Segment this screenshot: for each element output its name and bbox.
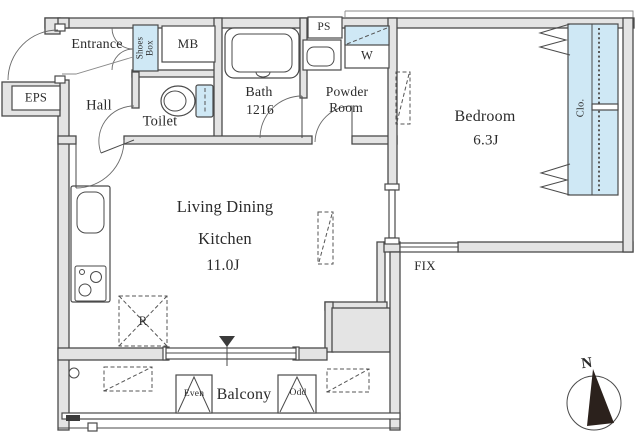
- label-fix-window: FIX: [414, 258, 436, 274]
- label-ldk-size: 11.0J: [206, 257, 240, 275]
- label-closet: Clo.: [576, 99, 587, 118]
- label-washer: W: [361, 49, 373, 64]
- label-compass-north: N: [580, 355, 593, 373]
- entry-direction-marker: [219, 336, 235, 347]
- label-hatch-even: Even: [184, 389, 204, 399]
- compass: [567, 369, 621, 430]
- bathtub: [225, 28, 299, 78]
- label-bath: Bath: [245, 85, 272, 101]
- label-bedroom: Bedroom: [455, 108, 516, 126]
- label-shoes-box: Shoes Box: [135, 31, 156, 65]
- kitchen-counter: [71, 186, 110, 302]
- toilet-fixture: [161, 85, 213, 117]
- label-hall: Hall: [86, 98, 112, 115]
- label-hatch-odd: Odd: [290, 388, 307, 398]
- label-powder-room-1: Powder: [326, 84, 368, 100]
- label-bath-size: 1216: [246, 102, 274, 118]
- label-entrance: Entrance: [71, 37, 122, 53]
- label-refrigerator: R: [139, 313, 148, 329]
- bedroom-sliding-door: [389, 190, 395, 238]
- label-bedroom-size: 6.3J: [473, 133, 498, 150]
- label-ldk-1: Living Dining: [177, 197, 274, 217]
- label-eps: EPS: [25, 91, 47, 106]
- folding-door-mark-bottom: [541, 164, 570, 195]
- compass-needle: [587, 369, 614, 426]
- label-toilet: Toilet: [143, 114, 178, 131]
- genkan-step-line: [62, 57, 133, 74]
- label-meter-box: MB: [178, 36, 199, 52]
- label-pipe-space: PS: [317, 21, 330, 33]
- label-balcony: Balcony: [217, 386, 272, 404]
- label-ldk-2: Kitchen: [198, 229, 252, 249]
- powder-sink: [303, 40, 341, 70]
- floorplan: Entrance Shoes Box MB EPS Hall Toilet Ba…: [0, 0, 640, 442]
- drain-cover: [66, 415, 80, 421]
- balcony-drain: [69, 368, 79, 378]
- floorplan-linework: [0, 0, 640, 442]
- entry-door-arc: [8, 30, 58, 80]
- label-powder-room-2: Room: [329, 100, 363, 116]
